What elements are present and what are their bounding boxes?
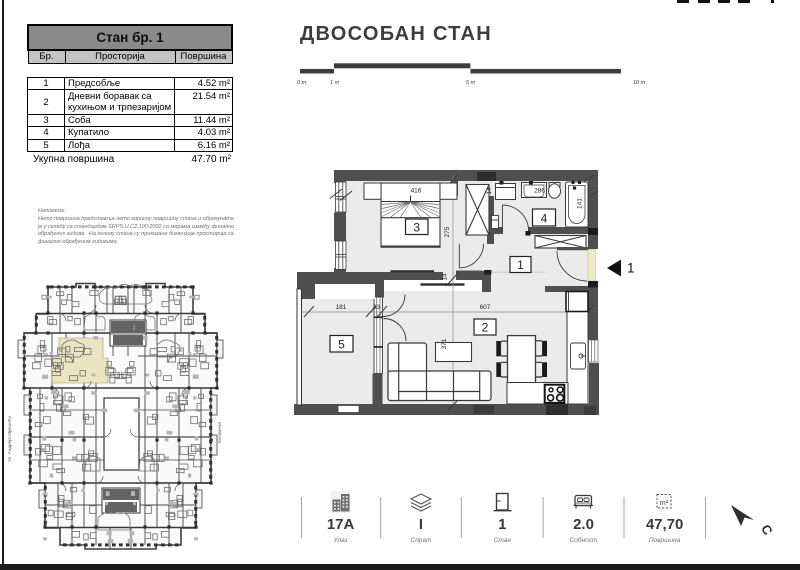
svg-text:Безимена: Безимена (217, 422, 222, 443)
svg-text:Ул. Андреја Мркшића: Ул. Андреја Мркшића (7, 416, 12, 462)
